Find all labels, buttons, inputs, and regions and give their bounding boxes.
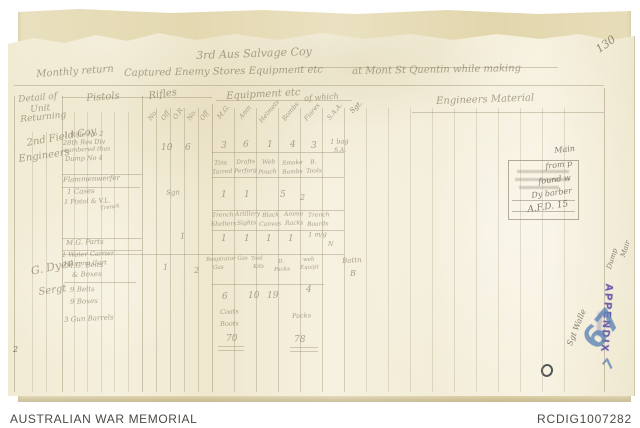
cell-note: Tool xyxy=(251,257,263,263)
cell-note: Racks xyxy=(285,220,304,227)
rule-line-vertical xyxy=(520,108,521,392)
cell-note: 3 Gun Barrels xyxy=(64,314,114,324)
cell-value: 1 xyxy=(267,141,273,150)
cell-note: Bombs xyxy=(282,169,303,176)
cell-total: 78 xyxy=(294,336,305,345)
cell-value: 1 xyxy=(266,235,272,244)
cell-note: Dump No 4 xyxy=(65,155,103,163)
rule-line-vertical xyxy=(322,108,323,392)
cell-note: Tins xyxy=(214,160,227,167)
pencil-annotation: Mair xyxy=(620,240,632,258)
cell-note: B xyxy=(350,270,356,278)
sub-header: Bombs xyxy=(281,101,300,122)
rule-line-vertical xyxy=(198,108,199,392)
column-header: Detail of xyxy=(18,93,58,105)
cell-note: Canvas xyxy=(259,221,281,228)
cell-value: 1 xyxy=(163,264,168,272)
pencil-annotation: Main xyxy=(554,145,575,155)
cell-note: Coats xyxy=(220,308,239,315)
rule-line-horizontal xyxy=(212,152,344,153)
sub-header: No. xyxy=(186,109,198,122)
cell-note: Trench xyxy=(100,204,120,212)
page-number: 130 xyxy=(594,34,617,55)
column-header: Pistols xyxy=(86,92,120,104)
doc-subtitle: Monthly return xyxy=(36,65,114,80)
column-header: of which xyxy=(304,93,339,103)
column-header: Rifles xyxy=(148,88,178,102)
document-content-layer: 3rd Aus Salvage CoyMonthly returnCapture… xyxy=(0,0,640,428)
cell-value: 4 xyxy=(290,141,296,150)
item-heading: M.G. Parts xyxy=(66,239,104,247)
cell-note: Sights xyxy=(237,220,256,227)
cell-note: 9 Boxes xyxy=(70,298,98,306)
cell-value: 6 xyxy=(185,144,191,153)
record-id: RCDIG1007282 xyxy=(537,412,632,426)
rule-line-vertical xyxy=(278,108,279,392)
cell-note: D. xyxy=(278,260,284,266)
cell-value: 19 xyxy=(267,292,278,301)
cell-value: 10 xyxy=(248,292,259,301)
rule-line-horizontal xyxy=(14,85,604,86)
rule-line-vertical xyxy=(300,108,301,392)
pencil-annotation: Dump xyxy=(606,248,619,270)
sub-header: Sgt. xyxy=(349,100,364,115)
cell-note: Artillery xyxy=(235,211,260,218)
rule-line-horizontal xyxy=(290,351,318,352)
rule-line-horizontal xyxy=(290,347,318,348)
rule-line-horizontal xyxy=(64,282,136,283)
cell-note: M.G. Belts xyxy=(66,262,103,270)
doc-subtitle: Captured Enemy Stores Equipment etc xyxy=(124,66,323,79)
cell-value: 1 xyxy=(244,235,250,244)
cell-note: Trench xyxy=(212,212,234,219)
cell-value: 4 xyxy=(306,286,312,295)
sub-header: Off xyxy=(199,110,210,122)
cell-note: Tarred xyxy=(212,169,233,176)
rule-line-vertical xyxy=(142,96,143,392)
scanned-document-viewer: 3rd Aus Salvage CoyMonthly returnCapture… xyxy=(0,0,640,428)
rule-line-horizontal xyxy=(62,97,212,98)
rule-line-vertical xyxy=(366,108,367,392)
cell-total: 70 xyxy=(226,335,237,344)
cell-note: Packs xyxy=(292,312,311,319)
sub-header: M.G. xyxy=(216,104,231,120)
rule-line-horizontal xyxy=(212,177,344,178)
cell-note: Packs xyxy=(274,267,290,273)
cell-note: 9 Belts xyxy=(70,286,95,294)
rule-line-vertical xyxy=(32,132,33,392)
cell-note: Equipt xyxy=(300,265,319,271)
cell-note: web xyxy=(303,258,315,264)
pencil-mark: 2 xyxy=(13,346,18,354)
cell-value: 10 xyxy=(161,144,172,153)
cell-note: 1 bag xyxy=(330,138,349,145)
cell-note: Tools xyxy=(306,168,322,175)
cell-note: Boards xyxy=(307,221,329,228)
sub-header: S.A.A. xyxy=(326,102,344,121)
cell-note: Drafts xyxy=(236,159,255,166)
cell-note: numbered thus xyxy=(64,146,110,154)
cell-note: Trench xyxy=(308,212,330,219)
cell-note: Gas xyxy=(213,266,224,272)
rule-line-vertical xyxy=(128,112,129,392)
column-header: Returning xyxy=(20,111,67,125)
cell-note: Shelters xyxy=(211,221,237,228)
rule-line-vertical xyxy=(454,108,455,392)
rule-line-vertical xyxy=(432,108,433,392)
stamp-text-blur xyxy=(517,170,569,173)
cell-value: 1 xyxy=(180,233,185,241)
sub-header: Amn xyxy=(238,104,253,120)
sub-header: Flares xyxy=(303,102,321,122)
doc-title: 3rd Aus Salvage Coy xyxy=(196,46,312,61)
rule-line-vertical xyxy=(410,108,411,392)
footer-bar: AUSTRALIAN WAR MEMORIAL RCDIG1007282 xyxy=(0,404,640,428)
cell-value: 1 xyxy=(221,191,227,200)
cell-note: 1 Pistol & V.L. xyxy=(64,197,111,205)
cell-value: 2 xyxy=(300,194,305,202)
rule-line-horizontal xyxy=(218,346,244,347)
column-header: Engineers Material xyxy=(436,94,534,107)
rule-line-vertical xyxy=(114,112,115,392)
cell-note: Sgn xyxy=(166,189,180,197)
sub-header: No. xyxy=(147,109,159,122)
cell-note: Smoke xyxy=(282,160,303,167)
cell-note: Web xyxy=(262,159,275,166)
cell-note: Battn xyxy=(342,257,362,265)
cell-note: Ammo xyxy=(284,211,304,218)
rule-line-horizontal xyxy=(412,112,604,113)
cell-note: Boots xyxy=(220,320,239,327)
cell-note: Black xyxy=(262,212,279,219)
cell-value: 6 xyxy=(222,293,228,302)
cell-note: Pouch xyxy=(258,169,277,176)
cell-value: 1 xyxy=(288,235,294,244)
cell-note: 1 Cases xyxy=(67,188,95,196)
rule-line-vertical xyxy=(212,104,213,392)
item-heading: Flammenwerfer xyxy=(63,175,120,184)
rule-line-vertical xyxy=(388,108,389,392)
cell-note: Kits xyxy=(253,265,264,271)
cell-note: S.A. xyxy=(334,147,346,154)
cell-value: 1 xyxy=(221,235,227,244)
cell-note: 1 m/g xyxy=(308,231,327,238)
rule-line-vertical xyxy=(476,108,477,392)
awm-watermark: AUSTRALIAN WAR MEMORIAL xyxy=(10,412,197,426)
cell-note: & Boxes xyxy=(72,271,102,279)
cell-value: 5 xyxy=(280,191,286,200)
cell-value: 1 xyxy=(244,191,250,200)
rule-line-vertical xyxy=(498,108,499,392)
cell-value: 3 xyxy=(221,142,227,151)
doc-subtitle: at Mont St Quentin while making xyxy=(352,64,521,77)
cell-note: Respirator Gas xyxy=(206,257,248,264)
rule-line-vertical xyxy=(542,108,543,392)
rule-line-horizontal xyxy=(218,350,244,351)
cell-value: 3 xyxy=(311,142,317,151)
cell-value: 2 xyxy=(194,267,199,275)
rule-line-vertical xyxy=(256,108,257,392)
cell-note: B. xyxy=(310,160,317,166)
cell-note: Perforg xyxy=(234,168,257,175)
cell-note: N xyxy=(328,242,333,248)
cell-value: 6 xyxy=(243,141,249,150)
rule-line-vertical xyxy=(156,108,157,392)
